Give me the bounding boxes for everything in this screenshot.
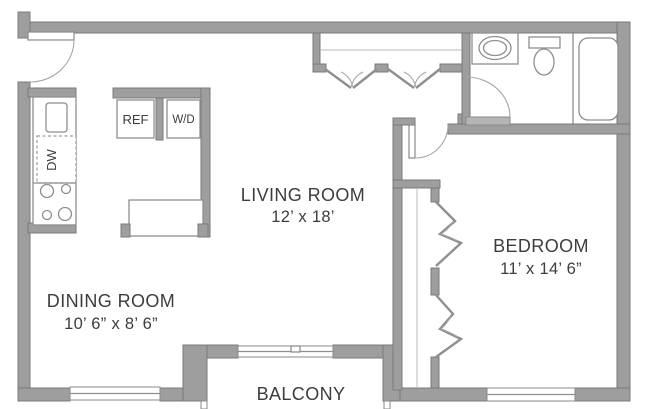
bedroom-closet-jamb-bottom xyxy=(431,357,439,388)
kitchen-table xyxy=(129,200,203,236)
wall-right xyxy=(617,22,630,401)
doors xyxy=(28,32,510,158)
toilet-tank xyxy=(529,37,560,48)
bedroom-door-swing-arc xyxy=(415,125,448,158)
dining-room-dims: 10’ 6” x 8’ 6” xyxy=(64,315,158,333)
balcony-wall-right xyxy=(333,345,383,358)
balcony-rail-left xyxy=(201,401,207,409)
toilet-bowl xyxy=(534,49,554,75)
bathroom xyxy=(472,33,618,124)
bedroom-door-leaf xyxy=(409,125,415,158)
living-room-label: LIVING ROOM xyxy=(241,185,365,205)
kitchen-sink xyxy=(46,103,67,132)
living-closet-bifold-panel xyxy=(325,69,351,88)
living-room-dims: 12’ x 18’ xyxy=(271,208,335,226)
balcony-rail-right xyxy=(384,401,390,409)
living-closet-bifold-panel xyxy=(388,69,414,88)
living-closet-cap-mid xyxy=(375,64,388,72)
wall-bottom-bedroom-left xyxy=(400,388,487,401)
wall-bottom-bedroom-right xyxy=(575,388,630,401)
sliding-door-handle xyxy=(291,346,300,352)
dining-room-label: DINING ROOM xyxy=(47,291,175,311)
kitchen-partition-divider xyxy=(156,98,163,140)
wall-bottom-dining-left xyxy=(18,388,70,401)
floor-plan: LIVING ROOM 12’ x 18’ DINING ROOM 10’ 6”… xyxy=(0,0,650,409)
wall-left xyxy=(18,82,30,400)
refrigerator-label: REF xyxy=(123,112,149,127)
bedroom-dims: 11’ x 14’ 6” xyxy=(500,260,582,278)
kitchen-counter-cap-top xyxy=(28,88,76,97)
entry-door-swing-arc xyxy=(30,40,74,82)
bedroom-closet-bifold-lower xyxy=(436,295,461,357)
living-closet-jamb-left xyxy=(313,33,320,64)
bedroom-label: BEDROOM xyxy=(493,236,589,256)
washer-dryer-label: W/D xyxy=(172,114,194,126)
room-labels: LIVING ROOM 12’ x 18’ DINING ROOM 10’ 6”… xyxy=(44,112,589,404)
entry-door-leaf xyxy=(28,32,74,40)
dishwasher-label: DW xyxy=(44,148,59,170)
bedroom-closet-jamb-top xyxy=(431,188,439,202)
bedroom-closet-bifold-arc xyxy=(441,234,458,241)
wall-living-bedroom xyxy=(393,118,402,390)
living-closet-cap-right xyxy=(440,64,462,72)
living-closet-bifold-panel xyxy=(353,69,377,88)
bathtub xyxy=(579,38,618,120)
kitchen-table-foot-right xyxy=(198,224,208,237)
living-closet-bifold-panel xyxy=(416,69,440,88)
wall-bathroom-left xyxy=(462,33,470,124)
wall-top xyxy=(18,22,630,33)
bedroom-closet-top-wall xyxy=(393,180,440,188)
floor-plan-drawing: LIVING ROOM 12’ x 18’ DINING ROOM 10’ 6”… xyxy=(0,0,650,409)
balcony-label: BALCONY xyxy=(257,384,346,404)
living-closet-cap-left xyxy=(313,64,326,72)
balcony-pier-left xyxy=(183,345,207,401)
bathroom-door-swing-arc xyxy=(466,77,510,117)
balcony-wall-left xyxy=(207,345,238,358)
kitchen-table-foot-left xyxy=(121,224,130,237)
bedroom-closet-bifold-upper xyxy=(436,202,461,266)
bedroom-closet-jamb-mid xyxy=(431,268,439,295)
bedroom-door-jamb-stub xyxy=(393,118,415,125)
bathroom-door-leaf xyxy=(466,117,510,125)
kitchen-partition-top xyxy=(113,88,210,98)
